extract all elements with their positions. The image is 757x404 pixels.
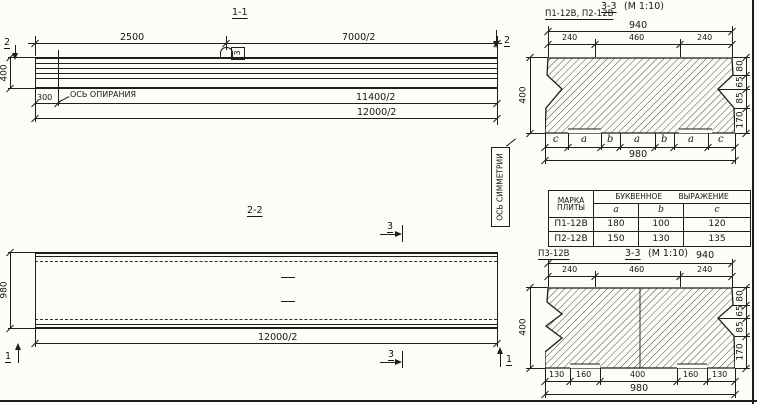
- drawing-sheet: 1-1 2500 7000/2 2 3 400: [0, 0, 757, 404]
- dim-label-940: 940: [629, 21, 647, 31]
- dim-label-170: 170: [737, 343, 746, 360]
- support-axis-line: [58, 50, 59, 106]
- dim-line: [28, 43, 502, 44]
- table-col-a: a: [594, 204, 639, 218]
- table-cell-c: 120: [684, 218, 750, 232]
- dim-line: [35, 118, 497, 119]
- dim-label-160: 160: [576, 371, 591, 379]
- dim-label-11400-2: 11400/2: [356, 93, 395, 103]
- plan-end-edge: [35, 252, 36, 329]
- slab-line: [35, 78, 497, 79]
- arrow-right-icon: [395, 359, 402, 365]
- cross-section-body: [545, 57, 735, 134]
- symmetry-cut-edge: [497, 252, 498, 347]
- dim-label-240: 240: [562, 266, 577, 274]
- cut-marker-1-right: 1: [506, 355, 512, 365]
- symmetry-axis-label: ОСЬ СИММЕТРИИ: [496, 153, 504, 221]
- ext-line: [8, 252, 35, 253]
- plan-line: [35, 256, 497, 257]
- dim-line: [545, 160, 735, 161]
- dim-line: [10, 57, 11, 89]
- ext-line: [35, 36, 36, 56]
- ext-line: [680, 39, 681, 57]
- dim-line: [548, 31, 732, 32]
- header-mark-line2: ПЛИТЫ: [557, 204, 585, 212]
- dim-label-980: 980: [1, 281, 10, 298]
- table-header-expr: БУКВЕННОЕ ВЫРАЖЕНИЕ: [594, 191, 750, 204]
- slab-line: [35, 63, 497, 64]
- plate-label: П3-12В: [538, 250, 570, 259]
- dim-line: [35, 103, 497, 104]
- table-cell-a: 150: [594, 232, 639, 246]
- table-cell-a: 180: [594, 218, 639, 232]
- plan-line: [35, 324, 497, 325]
- dim-line: [746, 57, 747, 133]
- dim-label-460: 460: [629, 34, 644, 42]
- dim-line: [746, 287, 747, 368]
- table-cell-mark: П2-12В: [549, 232, 594, 246]
- leader-line: [57, 96, 69, 103]
- symmetry-flag: ОСЬ СИММЕТРИИ: [491, 147, 510, 227]
- dim-label-12000-2: 12000/2: [258, 333, 297, 343]
- table-cell-b: 100: [639, 218, 684, 232]
- letter-dim-a: a: [688, 135, 694, 145]
- section-scale: (М 1:10): [624, 2, 664, 12]
- ext-line: [595, 39, 596, 57]
- table-col-b: b: [639, 204, 684, 218]
- ext-line: [8, 88, 35, 89]
- ext-line: [35, 329, 36, 347]
- dim-label-130: 130: [549, 371, 564, 379]
- dim-line: [548, 276, 732, 277]
- dim-label-400: 400: [1, 64, 10, 81]
- table-header-mark: МАРКА ПЛИТЫ: [549, 191, 594, 218]
- dim-label-240: 240: [562, 34, 577, 42]
- loop-callout-box: 3: [231, 47, 245, 60]
- dim-line: [545, 394, 735, 395]
- letter-dim-a: a: [581, 135, 587, 145]
- center-mark: [281, 301, 295, 302]
- letter-dim-b: b: [661, 135, 667, 145]
- hidden-edge-dashed: [35, 319, 497, 320]
- dim-line: [530, 287, 531, 368]
- slab-end-edge: [35, 57, 36, 89]
- ext-line: [8, 57, 35, 58]
- section-marker-3-top: 3: [387, 222, 393, 232]
- arrow-up-icon: [497, 347, 503, 354]
- dim-label-460: 460: [629, 266, 644, 274]
- center-mark: [281, 277, 295, 278]
- leader-line: [506, 138, 516, 146]
- arrow-up-icon: [15, 343, 21, 350]
- cut-line: [402, 225, 403, 242]
- ext-line: [677, 368, 678, 385]
- ext-line: [734, 336, 750, 337]
- dim-label-400: 400: [520, 86, 529, 103]
- letter-dim-c: c: [553, 135, 559, 145]
- view-2-2-title: 2-2: [247, 206, 263, 216]
- dim-label-85: 85: [737, 92, 746, 103]
- arrow-down-icon: [493, 41, 499, 48]
- section-title: 3-3: [625, 249, 641, 259]
- ext-line: [600, 368, 601, 385]
- arrow-right-icon: [395, 231, 402, 237]
- cut-line: [402, 351, 403, 368]
- dim-label-130: 130: [712, 371, 727, 379]
- dim-label-400: 400: [520, 318, 529, 335]
- dim-label-940: 940: [696, 251, 714, 261]
- letter-dim-b: b: [607, 135, 613, 145]
- dim-label-160: 160: [683, 371, 698, 379]
- ext-line: [734, 108, 750, 109]
- dim-label-240: 240: [697, 266, 712, 274]
- dim-label-80: 80: [737, 290, 746, 301]
- dim-label-980: 980: [630, 384, 648, 394]
- dim-label-240: 240: [697, 34, 712, 42]
- dim-line: [530, 57, 531, 133]
- ext-line: [8, 328, 35, 329]
- section-marker-3-bottom: 3: [388, 350, 394, 360]
- ext-line: [707, 368, 708, 385]
- table-cell-mark: П1-12В: [549, 218, 594, 232]
- ext-line: [735, 368, 750, 369]
- dim-line: [548, 44, 732, 45]
- dim-label-80: 80: [737, 60, 746, 71]
- frame-border-bottom: [0, 400, 757, 402]
- ext-line: [680, 271, 681, 287]
- dim-label-170: 170: [737, 111, 746, 128]
- section-title: 3-3: [601, 2, 617, 12]
- dim-label-85: 85: [737, 321, 746, 332]
- frame-border-right: [752, 0, 754, 404]
- dim-label-65: 65: [737, 76, 746, 87]
- ext-line: [595, 271, 596, 287]
- dim-label-980: 980: [629, 150, 647, 160]
- cut-marker-1-left: 1: [5, 352, 11, 362]
- dim-line: [10, 252, 11, 329]
- dim-label-2500: 2500: [120, 33, 144, 43]
- plan-top-edge: [35, 252, 497, 254]
- support-axis-label: ОСЬ ОПИРАНИЯ: [70, 91, 136, 99]
- letter-dim-c: c: [718, 135, 724, 145]
- ext-line: [732, 57, 750, 58]
- ext-line: [570, 368, 571, 385]
- loop-callout-label: 3: [234, 50, 242, 55]
- dim-label-300: 300: [37, 94, 52, 102]
- cut-marker-2-left: 2: [4, 38, 10, 48]
- slab-top-edge: [35, 57, 497, 59]
- ext-line: [35, 89, 36, 122]
- slab-line: [35, 73, 497, 74]
- dim-line: [35, 343, 497, 344]
- dim-label-12000-2: 12000/2: [357, 108, 396, 118]
- table-col-c: c: [684, 204, 750, 218]
- symmetry-ext-line: [497, 36, 498, 125]
- plan-bottom-edge: [35, 327, 497, 329]
- slab-bottom-edge: [35, 87, 497, 89]
- table-cell-c: 135: [684, 232, 750, 246]
- ext-line: [735, 133, 750, 134]
- dim-label-65: 65: [737, 305, 746, 316]
- table-cell-b: 130: [639, 232, 684, 246]
- hidden-edge-dashed: [35, 261, 497, 262]
- slab-line: [35, 68, 497, 69]
- view-1-1-title: 1-1: [232, 8, 248, 18]
- letter-dim-a: a: [634, 135, 640, 145]
- section-scale: (М 1:10): [648, 249, 688, 259]
- dim-label-7000-2: 7000/2: [342, 33, 375, 43]
- plate-dimensions-table: МАРКА ПЛИТЫ БУКВЕННОЕ ВЫРАЖЕНИЕ a b c П1…: [548, 190, 751, 247]
- cut-marker-2-right: 2: [504, 36, 510, 46]
- dim-line: [548, 263, 732, 264]
- ext-line: [732, 287, 750, 288]
- dim-label-400: 400: [630, 371, 645, 379]
- cross-section-body: [545, 287, 735, 369]
